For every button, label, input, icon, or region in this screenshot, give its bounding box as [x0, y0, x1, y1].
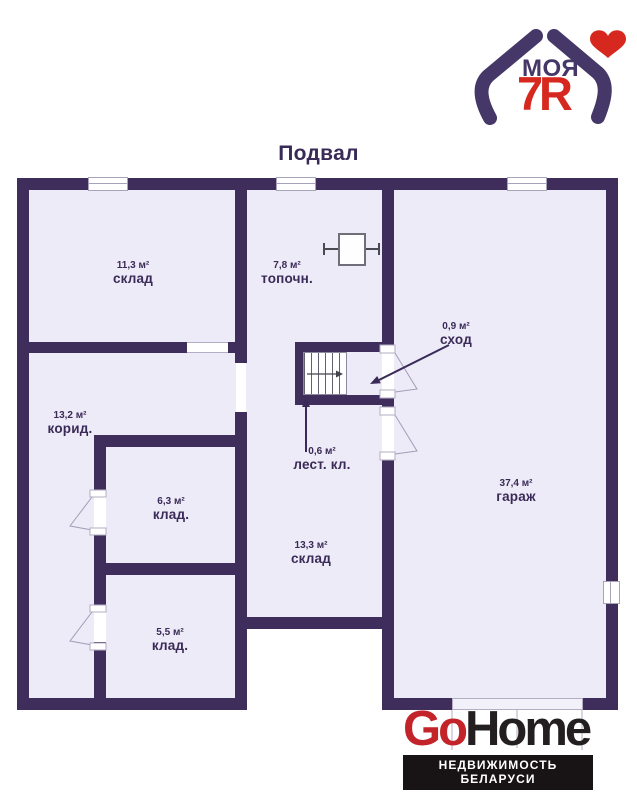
room-label-sklad-2: 13,3 м²склад: [291, 541, 331, 566]
door-opening: [382, 351, 394, 394]
wall-segment: [94, 435, 106, 495]
window: [88, 177, 128, 191]
wall-segment: [94, 435, 247, 447]
wall-segment: [382, 456, 394, 710]
door-opening: [94, 495, 106, 528]
wall-segment: [382, 394, 394, 414]
wall-segment: [29, 342, 187, 353]
room-label-topochn: 7,8 м²топочн.: [261, 261, 313, 286]
wall-segment: [235, 617, 394, 629]
wall-segment: [17, 178, 29, 710]
floorplan-page: МОЯ 7Я Подвал: [0, 0, 637, 800]
boiler-pipe: [323, 243, 325, 255]
wall-segment: [235, 412, 247, 710]
wall-segment: [235, 342, 247, 363]
room-label-klad-2: 5,5 м²клад.: [152, 628, 188, 653]
door-opening: [187, 342, 228, 353]
wall-segment: [382, 190, 394, 351]
room-label-klad-1: 6,3 м²клад.: [153, 497, 189, 522]
gohome-tagline: НЕДВИЖИМОСТЬ БЕЛАРУСИ: [403, 755, 593, 790]
wall-segment: [94, 563, 247, 575]
gohome-wordmark: GoHome: [403, 706, 595, 753]
door-opening: [236, 363, 246, 412]
wall-segment: [94, 528, 106, 575]
room-label-lest-kl: 0,6 м²лест. кл.: [293, 447, 350, 472]
boiler-pipe: [325, 248, 338, 250]
room-label-garazh: 37,4 м²гараж: [496, 479, 535, 504]
boiler-pipe: [378, 243, 380, 255]
window: [507, 177, 547, 191]
gohome-logo: GoHome НЕДВИЖИМОСТЬ БЕЛАРУСИ: [403, 706, 595, 790]
wall-segment: [94, 575, 106, 610]
exterior-notch: [247, 629, 382, 712]
window: [603, 581, 620, 604]
wall-segment: [235, 190, 247, 353]
staircase-icon: [303, 352, 347, 395]
wall-segment: [606, 178, 618, 710]
room-label-skhod: 0,9 м²сход: [440, 322, 472, 347]
door-opening: [94, 610, 106, 642]
door-opening: [382, 414, 394, 456]
room-label-korid: 13,2 м²корид.: [48, 411, 93, 436]
stair-enclosure-wall: [295, 395, 382, 405]
room-label-sklad-1: 11,3 м²склад: [113, 261, 153, 286]
boiler-icon: [338, 233, 366, 266]
window: [276, 177, 316, 191]
wall-segment: [94, 642, 106, 710]
floorplan: 11,3 м²склад 7,8 м²топочн. 13,2 м²корид.…: [0, 0, 637, 800]
stair-enclosure-wall: [295, 342, 382, 352]
wall-segment: [17, 698, 247, 710]
